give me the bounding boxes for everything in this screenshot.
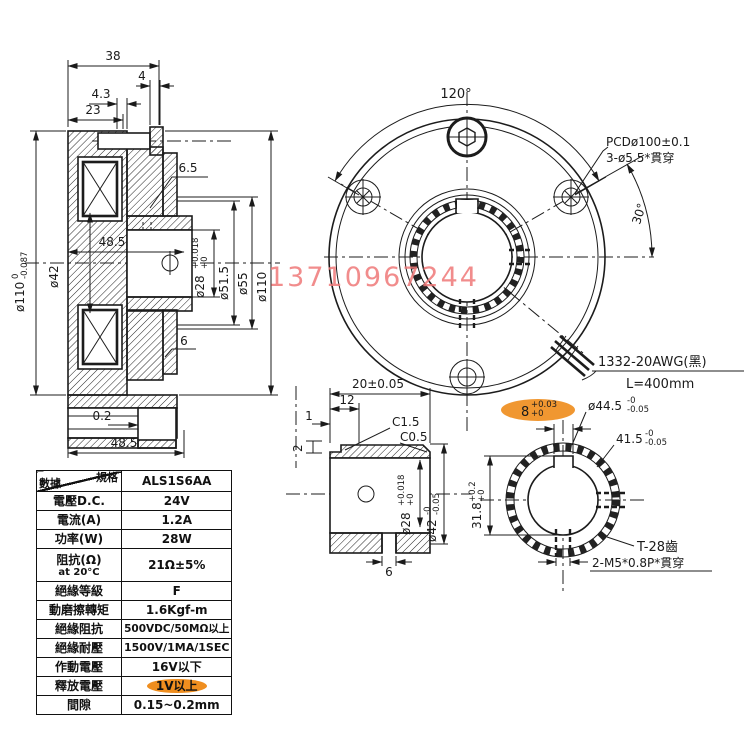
row-label: 絕緣耐壓: [37, 639, 122, 658]
dim-dia42: ø42: [47, 265, 61, 288]
svg-text:ø110: ø110: [13, 282, 27, 312]
dim-dia44-5: ø44.5 -0 -0.05: [588, 396, 649, 415]
hub-setscrew-hole: [358, 486, 374, 502]
technical-drawing-page: 38 4 4.3 23 6.5 48.5 0.2 48.5 6 ø110: [0, 0, 750, 750]
gear-bore: [528, 465, 598, 535]
spec-table: 規格 數據 ALS1S6AA 電壓D.C. 24V 電流(A) 1.2A 功率(…: [36, 470, 232, 715]
dim-48-5-mid: 48.5: [99, 235, 126, 249]
svg-text:ø110: ø110: [255, 272, 269, 302]
dim-48-5-bot: 48.5: [111, 436, 138, 450]
table-row: 功率(W) 28W: [37, 530, 232, 549]
rotor-gear-view: 8 +0.03 +0 ø44.5 -0 -0.05 41.5 -0 -0.05 …: [468, 396, 712, 592]
side-section-view: 38 4 4.3 23 6.5 48.5 0.2 48.5 6 ø110: [11, 49, 280, 458]
svg-text:+0: +0: [406, 493, 416, 506]
row-value: 1500V/1MA/1SEC: [122, 639, 232, 658]
dim-2: 2: [291, 444, 305, 452]
hex-screw: [447, 117, 487, 157]
row-value: 1.6Kgf-m: [122, 601, 232, 620]
pcd-note-2: 3-ø5.5*貫穿: [606, 150, 674, 165]
angle-120-label: 120°: [440, 87, 471, 102]
tap-note: 2-M5*0.8P*貫穿: [592, 555, 684, 570]
hub-section-view: 20±0.05 12 1 2 C1.5 C0.5 ø28 +0.018 +0 ø…: [286, 377, 472, 579]
lead-bushing: [98, 133, 150, 149]
angle-30-label: 30°: [629, 201, 649, 226]
dim-4-3: 4.3: [91, 87, 110, 101]
table-row: 釋放電壓 1V以上: [37, 677, 232, 696]
mount-hole-bottom: [449, 359, 485, 395]
rotor-top: [127, 147, 163, 216]
rotor-bottom: [127, 310, 163, 380]
dim-dia55: ø55: [236, 272, 250, 295]
svg-text:31.8: 31.8: [470, 502, 484, 529]
row-label: 動磨擦轉矩: [37, 601, 122, 620]
dim-38: 38: [105, 49, 120, 63]
row-label: 作動電壓: [37, 658, 122, 677]
corner-top-label: 規格: [96, 471, 118, 485]
coil-bottom: [83, 310, 117, 364]
corner-bottom-label: 數據: [39, 477, 61, 491]
svg-text:ø55: ø55: [236, 272, 250, 295]
row-value: 0.15~0.2mm: [122, 696, 232, 715]
row-label: 間隙: [37, 696, 122, 715]
svg-text:ø28: ø28: [399, 512, 413, 535]
table-row: 絕緣阻抗 500VDC/50MΩ以上: [37, 620, 232, 639]
dim-41-5: 41.5 -0 -0.05: [616, 429, 667, 448]
row-label: 功率(W): [37, 530, 122, 549]
svg-text:-0.05: -0.05: [432, 493, 442, 515]
armature-disc-bottom: [163, 310, 177, 374]
lead-wires: [551, 336, 594, 376]
row-label: 電流(A): [37, 511, 122, 530]
wire-note-2: L=400mm: [626, 377, 694, 392]
dim-6-gap: 6: [180, 334, 188, 348]
highlighted-release-voltage: 1V以上: [147, 679, 207, 693]
table-row: 電壓D.C. 24V: [37, 492, 232, 511]
table-header-row: 規格 數據 ALS1S6AA: [37, 471, 232, 492]
table-row: 動磨擦轉矩 1.6Kgf-m: [37, 601, 232, 620]
dim-dia51-5: ø51.5: [217, 266, 231, 300]
pcd-note-1: PCDø100±0.1: [606, 135, 690, 149]
svg-text:+0: +0: [477, 489, 487, 502]
table-row: 絕緣耐壓 1500V/1MA/1SEC: [37, 639, 232, 658]
hub-core: [127, 230, 192, 297]
coil-top: [83, 162, 117, 216]
svg-text:2: 2: [291, 444, 305, 452]
dim-12: 12: [339, 393, 354, 407]
row-value: 500VDC/50MΩ以上: [122, 620, 232, 639]
dim-20: 20±0.05: [352, 377, 404, 391]
dim-6-hub: 6: [385, 565, 393, 579]
svg-text:-0.05: -0.05: [627, 405, 649, 415]
svg-text:-0.087: -0.087: [20, 252, 30, 279]
row-value: 1V以上: [122, 677, 232, 696]
row-label: 絕緣阻抗: [37, 620, 122, 639]
row-value: 1.2A: [122, 511, 232, 530]
dim-dia110-right: ø110: [255, 272, 269, 302]
dim-dia110-left: ø110 0 -0.087: [11, 252, 30, 312]
dim-dia28-side: ø28 +0.018 +0: [191, 238, 210, 298]
svg-text:ø42: ø42: [47, 265, 61, 288]
svg-text:ø51.5: ø51.5: [217, 266, 231, 300]
dim-1: 1: [305, 409, 313, 423]
table-row: 絕緣等級 F: [37, 582, 232, 601]
table-corner-cell: 規格 數據: [37, 471, 122, 492]
svg-text:-0.05: -0.05: [645, 438, 667, 448]
table-row: 阻抗(Ω) at 20°C 21Ω±5%: [37, 549, 232, 582]
dim-6-5: 6.5: [178, 161, 197, 175]
row-value: 16V以下: [122, 658, 232, 677]
teeth-note: T-28齒: [636, 540, 678, 555]
row-label: 阻抗(Ω) at 20°C: [37, 549, 122, 582]
table-row: 間隙 0.15~0.2mm: [37, 696, 232, 715]
row-value: F: [122, 582, 232, 601]
table-row: 作動電壓 16V以下: [37, 658, 232, 677]
svg-text:30°: 30°: [629, 201, 649, 226]
row-label: 絕緣等級: [37, 582, 122, 601]
svg-text:ø28: ø28: [193, 275, 207, 298]
svg-text:ø44.5: ø44.5: [588, 399, 622, 413]
armature-disc-top: [163, 153, 177, 216]
row-value: 24V: [122, 492, 232, 511]
dim-4: 4: [138, 69, 146, 83]
wire-note-1: 1332-20AWG(黑): [598, 355, 707, 370]
table-row: 電流(A) 1.2A: [37, 511, 232, 530]
svg-text:+0: +0: [200, 256, 210, 269]
chamfer-c1-5: C1.5: [392, 415, 419, 429]
model-cell: ALS1S6AA: [122, 471, 232, 492]
svg-text:8: 8: [521, 405, 529, 420]
row-value: 21Ω±5%: [122, 549, 232, 582]
row-label: 電壓D.C.: [37, 492, 122, 511]
chamfer-c0-5: C0.5: [400, 430, 427, 444]
svg-text:41.5: 41.5: [616, 432, 643, 446]
dim-0-2: 0.2: [92, 409, 111, 423]
row-label: 釋放電壓: [37, 677, 122, 696]
svg-text:ø42: ø42: [425, 519, 439, 542]
dim-23: 23: [85, 103, 100, 117]
row-value: 28W: [122, 530, 232, 549]
watermark: 13710967244: [268, 262, 479, 293]
dim-31-8: 31.8 +0.2 +0: [468, 481, 487, 529]
svg-text:+0: +0: [531, 409, 544, 419]
